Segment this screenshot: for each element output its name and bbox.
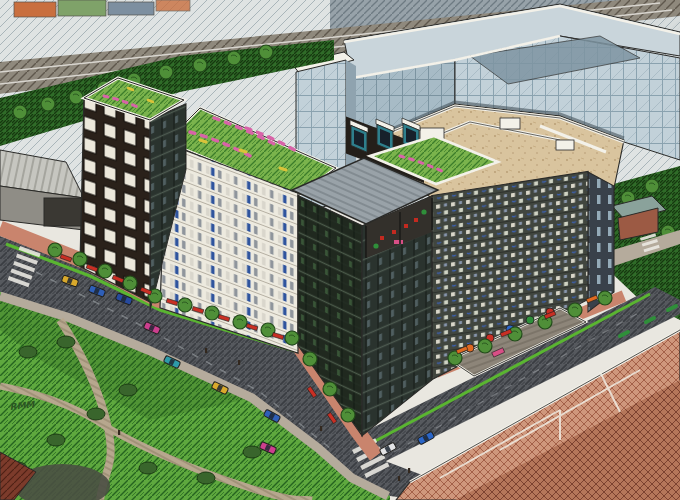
park-bush [57, 336, 75, 348]
grove-tree [645, 179, 659, 193]
park-bush [119, 384, 137, 396]
hedge-tree [259, 45, 273, 59]
umbrella [526, 316, 534, 324]
architectural-rendering: RMM [0, 0, 680, 500]
rendering-stage: RMM [0, 0, 680, 500]
warehouse-door [44, 198, 82, 226]
mech-unit [556, 140, 574, 150]
park-bush [47, 434, 65, 446]
park-bush [19, 346, 37, 358]
hedge-tree [41, 97, 55, 111]
park-bush [197, 472, 215, 484]
hedge-tree [69, 90, 83, 104]
park-bush [243, 446, 261, 458]
mech-unit [500, 118, 520, 129]
park-bush [87, 408, 105, 420]
hedge-tree [13, 105, 27, 119]
dark-tower-front [80, 97, 150, 302]
hedge-tree [159, 65, 173, 79]
park-bush [139, 462, 157, 474]
hedge-tree [227, 51, 241, 65]
end-wing-facade [588, 172, 614, 312]
hedge-tree [193, 58, 207, 72]
